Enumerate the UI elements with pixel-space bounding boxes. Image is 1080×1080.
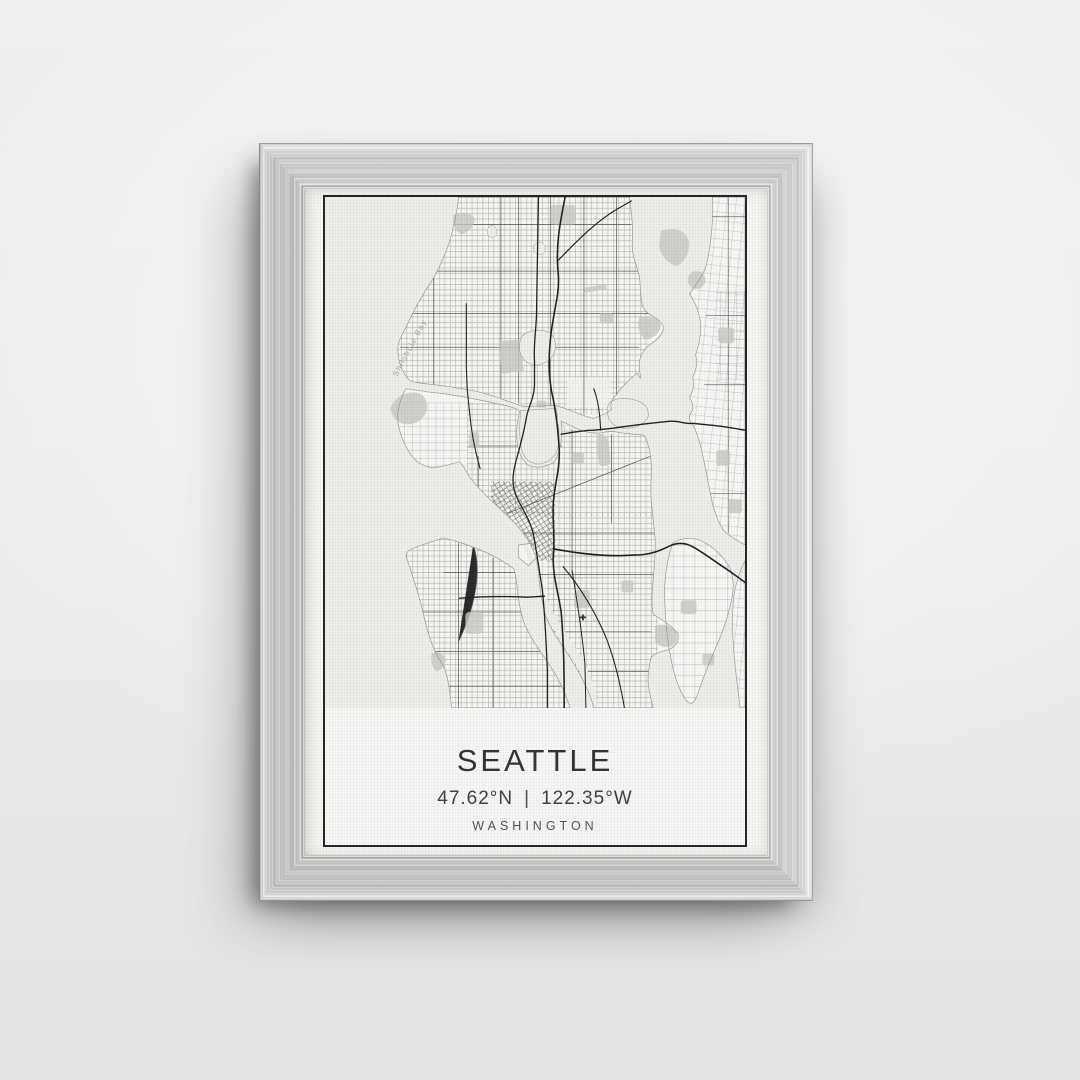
latitude-value: 47.62°N — [437, 789, 513, 808]
seattle-street-map: Shilshole Bay — [325, 197, 745, 708]
coordinates-separator: | — [524, 789, 530, 808]
frame-strip-right — [767, 143, 813, 901]
frame-strip-bottom — [259, 855, 813, 901]
region-label: WASHINGTON — [472, 820, 597, 833]
frame-strip-top — [259, 143, 813, 189]
print-border: Shilshole Bay SEATTLE 47.62°N | 122.35°W… — [323, 195, 747, 847]
wall: Shilshole Bay SEATTLE 47.62°N | 122.35°W… — [0, 0, 1080, 1080]
poster-coordinates: 47.62°N | 122.35°W — [437, 789, 632, 808]
poster-title: SEATTLE — [457, 745, 614, 776]
canvas-print: Shilshole Bay SEATTLE 47.62°N | 122.35°W… — [305, 189, 767, 855]
longitude-value: 122.35°W — [541, 789, 633, 808]
frame-strip-left — [259, 143, 305, 901]
